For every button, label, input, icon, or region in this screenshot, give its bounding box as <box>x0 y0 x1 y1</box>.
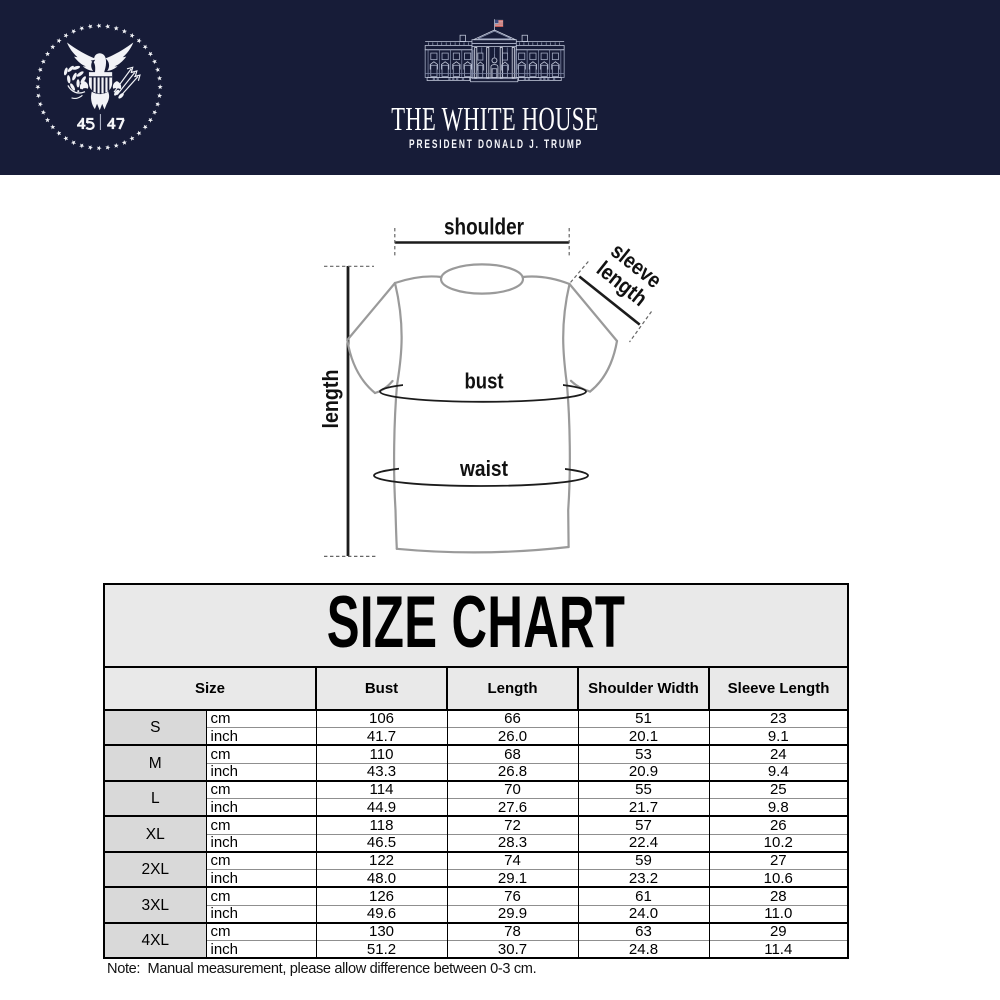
svg-text:waist: waist <box>459 456 508 481</box>
svg-text:bust: bust <box>465 369 505 394</box>
svg-text:shoulder: shoulder <box>444 214 524 240</box>
svg-text:length: length <box>318 370 343 429</box>
